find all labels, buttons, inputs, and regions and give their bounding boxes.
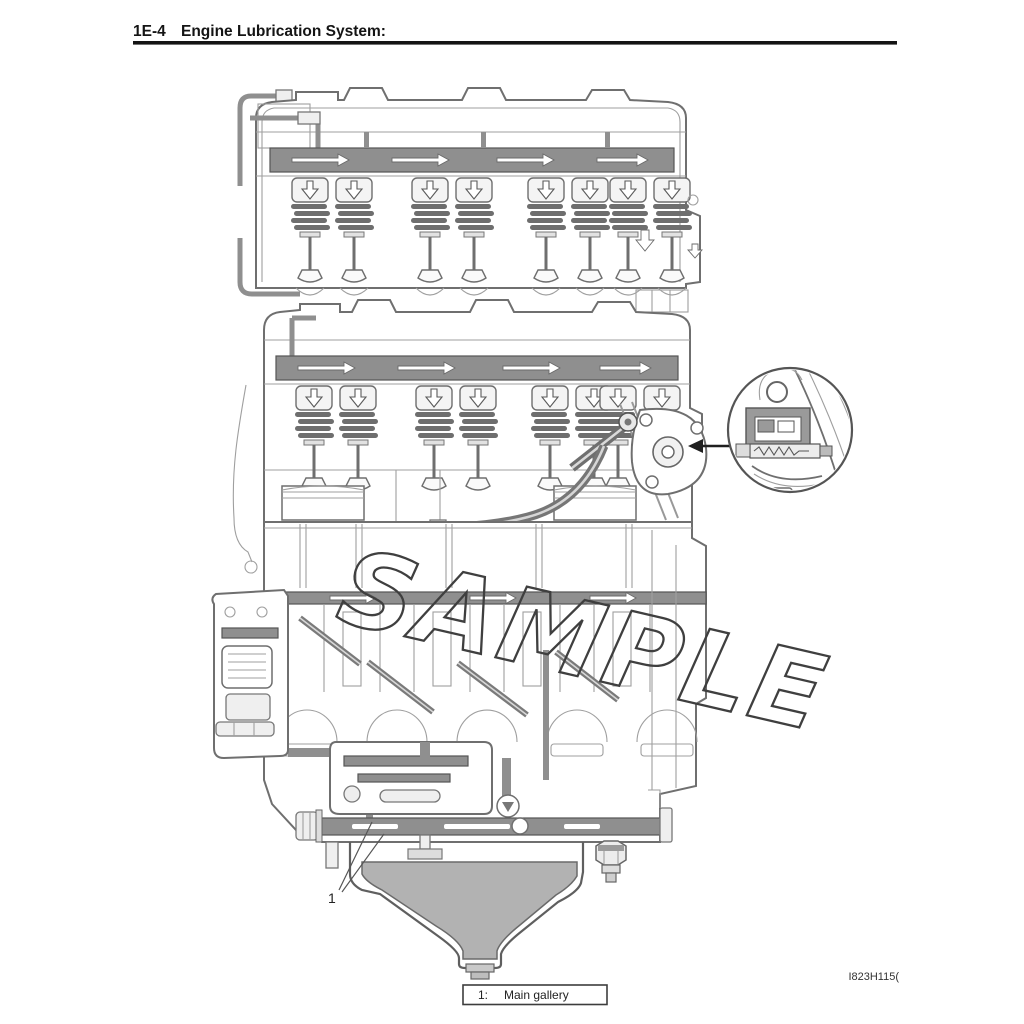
- gallery-plug-bolt: [296, 812, 318, 840]
- chain-housing-joint: [636, 290, 688, 312]
- section-number: 1E-4: [133, 23, 166, 40]
- oil-pump: [330, 742, 519, 817]
- gallery-end-fitting: [660, 808, 672, 842]
- oil-pickup-neck: [420, 835, 430, 849]
- page-header: 1E-4 Engine Lubrication System:: [133, 23, 897, 45]
- drain-plug-boss: [466, 964, 494, 972]
- figure-caption: 1: Main gallery: [463, 985, 607, 1005]
- piston-left: [282, 486, 364, 520]
- oil-filter-element: [222, 646, 272, 688]
- caption-index: 1:: [478, 988, 488, 1002]
- manual-page: 1E-4 Engine Lubrication System:: [0, 0, 1024, 1024]
- callout-1-label: 1: [328, 890, 336, 906]
- oil-filter-housing: [212, 590, 288, 758]
- cylinder-head-cover-section: [250, 88, 702, 295]
- engine-lubrication-diagram: 1E-4 Engine Lubrication System:: [0, 0, 1024, 1024]
- oil-strainer: [408, 849, 442, 859]
- caption-label: Main gallery: [504, 988, 569, 1002]
- filter-bolt: [216, 722, 274, 736]
- port-scallops-top: [296, 288, 686, 295]
- figure-code: I823H115(: [848, 971, 899, 983]
- oil-pan: [350, 842, 583, 979]
- oil-pan-oil: [362, 862, 577, 959]
- header-rule: [133, 41, 897, 45]
- section-title: Engine Lubrication System:: [181, 23, 386, 40]
- detail-callout: [688, 366, 862, 511]
- drain-plug: [471, 972, 489, 979]
- oil-pressure-switch: [596, 841, 626, 882]
